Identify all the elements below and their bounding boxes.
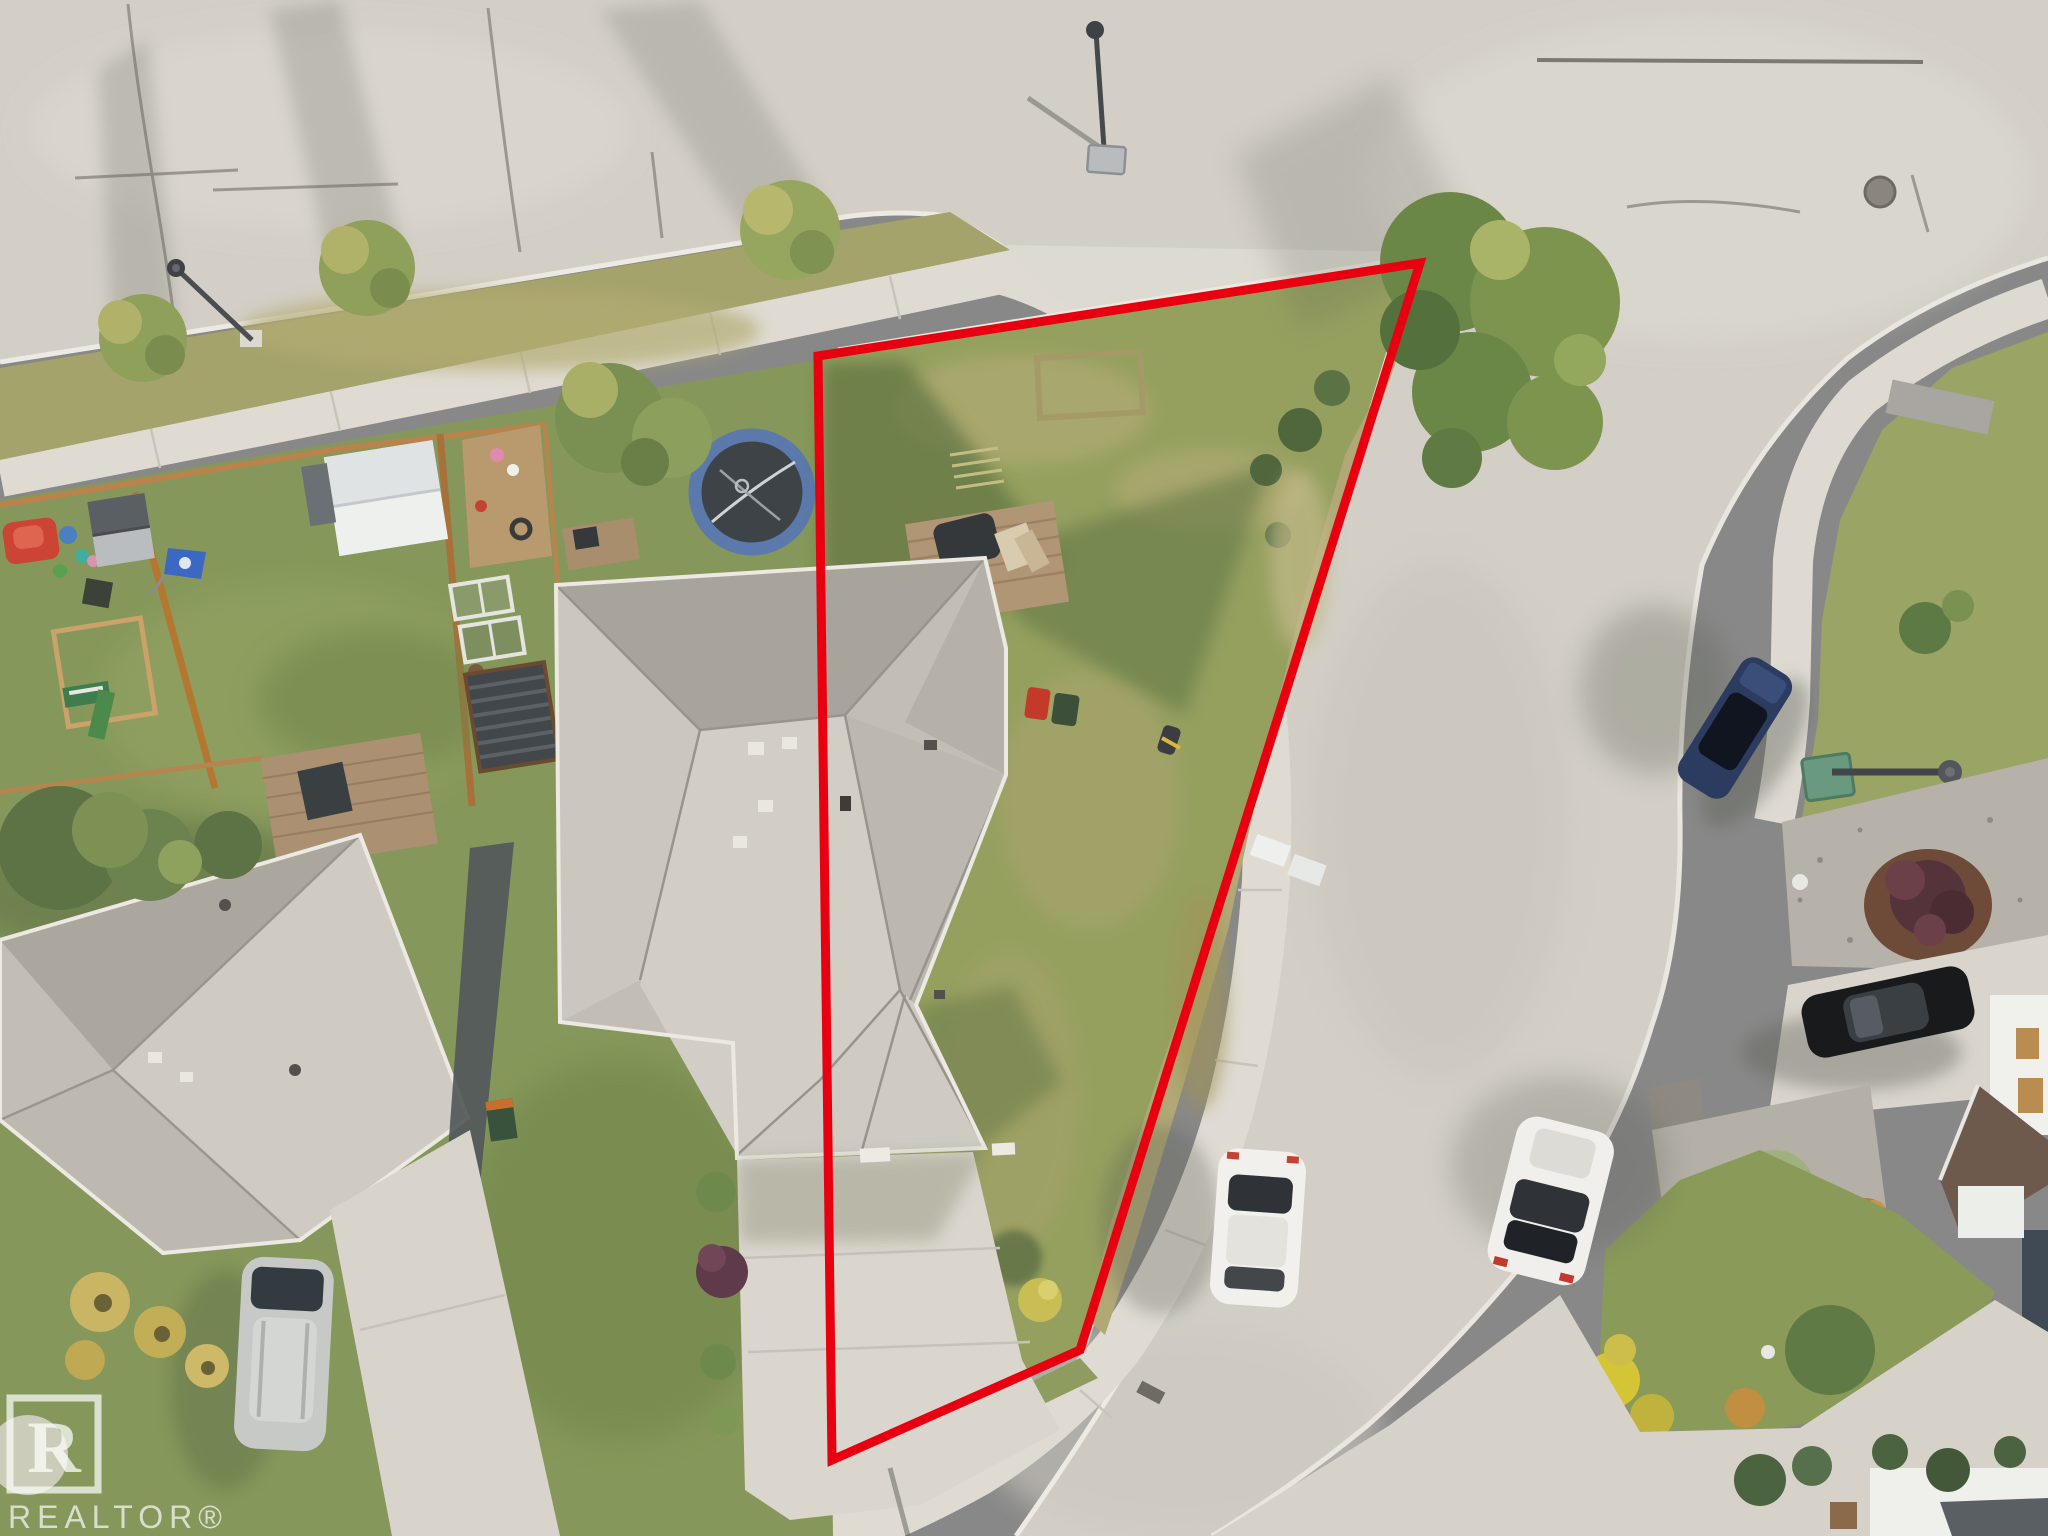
roof-vent-white: [148, 1052, 162, 1063]
boulevard-tree-3: [740, 180, 840, 280]
hatch-rear-glass: [1224, 1266, 1285, 1292]
hatch-windshield: [1227, 1174, 1293, 1214]
road-dark-patch: [1310, 560, 1570, 1080]
toy-red: [475, 500, 487, 512]
realtor-watermark-text: REALTOR®: [8, 1499, 228, 1535]
toy-white: [507, 464, 519, 476]
aerial-photo-canvas: R REALTOR®: [0, 0, 2048, 1536]
utility-box-green: [1801, 753, 1854, 801]
garden-shed-small: [87, 493, 155, 567]
boulevard-tree-2: [319, 220, 415, 316]
roof-vent-dark: [219, 899, 231, 911]
van-windshield: [250, 1266, 324, 1312]
utility-cabinet: [1087, 145, 1126, 175]
dry-mottle-2: [1172, 890, 1228, 1110]
tan-door: [2016, 1028, 2039, 1059]
silver-minivan: [233, 1256, 335, 1453]
porch-step: [860, 1147, 891, 1163]
toy-teal: [75, 549, 89, 563]
yard-ornament: [1792, 874, 1808, 890]
white-hatchback: [1209, 1147, 1308, 1309]
white-rock: [1761, 1345, 1775, 1359]
east-house-wall: [1958, 1186, 2024, 1238]
trampoline: [695, 435, 809, 549]
brown-box: [1830, 1502, 1857, 1529]
neighbor-grill: [573, 526, 600, 550]
boulevard-dry-patch: [240, 290, 760, 370]
flag-emblem: [179, 557, 191, 569]
manhole-cover: [1865, 177, 1895, 207]
green-garbage-bin: [1051, 692, 1080, 726]
dry-mottle: [1270, 470, 1330, 650]
roof-vent-dark-2: [289, 1064, 301, 1076]
realtor-logo-letter: R: [27, 1407, 82, 1489]
aerial-photo: R REALTOR®: [0, 0, 2048, 1536]
pergola: [465, 662, 559, 771]
toy-pink-2: [490, 448, 504, 462]
sandbox-dirt: [462, 425, 552, 568]
red-recycle-bin: [1024, 687, 1051, 721]
road-tar-seam: [1537, 60, 1923, 62]
light-head-center: [1945, 767, 1955, 777]
porch-step-2: [992, 1142, 1016, 1155]
small-tree-east-2: [1942, 590, 1974, 622]
yellow-bush-light: [1038, 1280, 1058, 1300]
roof-vent-white-2: [180, 1072, 193, 1082]
toy-ball-blue: [59, 526, 77, 544]
toy-green: [53, 564, 67, 578]
green-dumpster: [485, 1098, 517, 1141]
compost-bin: [82, 578, 113, 608]
lawn-mound: [1785, 1305, 1875, 1395]
tan-door-2: [2018, 1078, 2043, 1113]
